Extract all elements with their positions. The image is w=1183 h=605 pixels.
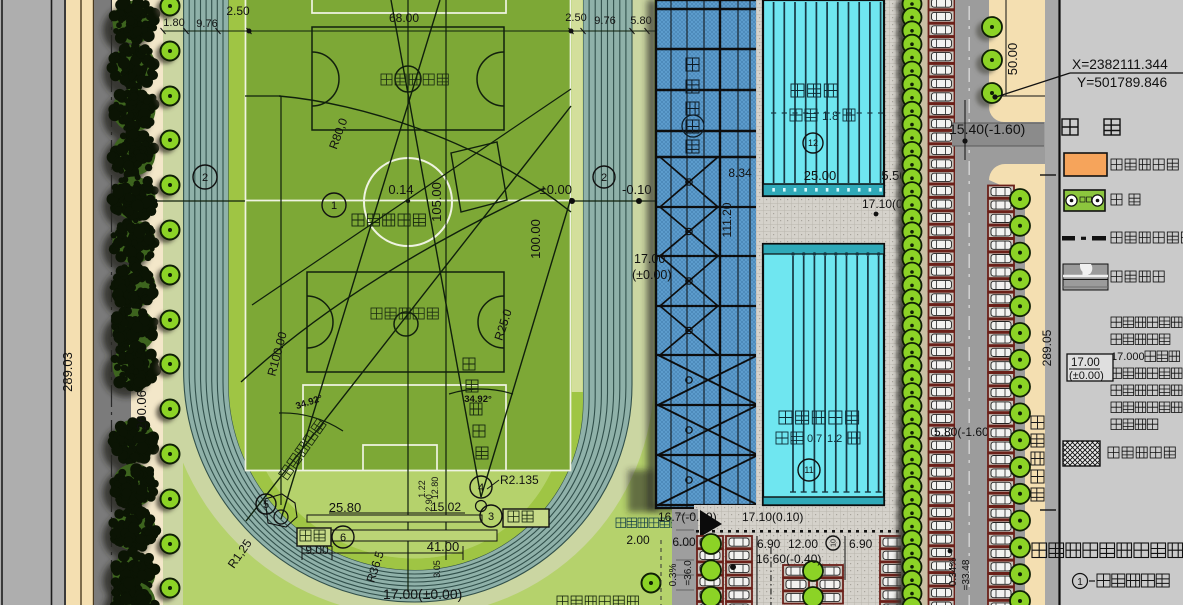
svg-text:11: 11 [804,465,813,475]
svg-text:2.50: 2.50 [226,4,250,18]
svg-text:25.00: 25.00 [804,168,837,183]
svg-text:68.00: 68.00 [389,11,419,25]
svg-text:17.00: 17.00 [1071,357,1100,369]
svg-text:X=2382111.344: X=2382111.344 [1072,57,1168,72]
svg-text:(±0.00): (±0.00) [632,268,672,282]
svg-text:2: 2 [601,172,607,184]
svg-text:4: 4 [478,482,484,494]
svg-text:9.76: 9.76 [594,15,615,27]
svg-text:1: 1 [1077,577,1083,588]
svg-text:2: 2 [202,172,208,184]
svg-text:6.00: 6.00 [672,535,696,549]
svg-text:=36.0: =36.0 [683,560,694,586]
svg-text:0.34%: 0.34% [948,558,959,586]
svg-text:1.2: 1.2 [827,433,842,445]
svg-text:17.10(0.10): 17.10(0.10) [742,510,803,524]
svg-text:0.14: 0.14 [388,182,413,197]
svg-text:Y=501789.846: Y=501789.846 [1077,75,1167,90]
svg-text:16.60(-0.40): 16.60(-0.40) [756,552,821,566]
svg-text:3: 3 [488,511,494,523]
svg-text:12.00: 12.00 [788,537,818,551]
svg-text:260.06: 260.06 [134,390,149,430]
svg-text:17.00: 17.00 [634,252,665,266]
svg-text:111.20: 111.20 [720,202,734,237]
svg-text:100.00: 100.00 [528,219,543,259]
svg-text:10: 10 [831,539,838,547]
svg-text:1: 1 [331,200,337,212]
svg-text:15.40(-1.60): 15.40(-1.60) [949,121,1025,137]
svg-text:15.02: 15.02 [431,500,461,514]
svg-text:12.80: 12.80 [430,477,440,500]
svg-text:0.3%: 0.3% [668,563,679,586]
svg-text:8.34: 8.34 [728,166,752,180]
svg-text:289.05: 289.05 [1040,329,1054,366]
svg-text:9.00: 9.00 [305,543,329,557]
svg-text:0.7: 0.7 [807,433,822,445]
svg-text:6.90: 6.90 [757,537,781,551]
svg-text:17.00(±0.00): 17.00(±0.00) [383,586,462,602]
svg-text:41.00: 41.00 [427,539,460,554]
svg-text:105.00: 105.00 [429,182,444,222]
svg-text:±0.00: ±0.00 [540,182,572,197]
svg-text:(±0.00): (±0.00) [1069,370,1104,382]
svg-text:3.05: 3.05 [432,560,442,578]
svg-text:289.03: 289.03 [60,352,75,392]
svg-text:1.8: 1.8 [822,109,839,123]
svg-text:2.00: 2.00 [626,533,650,547]
svg-text:5.80(-1.60): 5.80(-1.60) [934,425,993,439]
svg-text:6.90: 6.90 [849,537,873,551]
svg-text:12: 12 [808,138,818,148]
svg-text:9.76: 9.76 [196,18,217,30]
svg-text:6: 6 [340,532,346,544]
svg-text:17.000: 17.000 [1111,351,1145,363]
svg-text:=33.48: =33.48 [961,559,972,590]
svg-text:50.00: 50.00 [1005,43,1020,76]
svg-text:2.50: 2.50 [565,12,586,24]
svg-text:R2.135: R2.135 [500,473,539,487]
